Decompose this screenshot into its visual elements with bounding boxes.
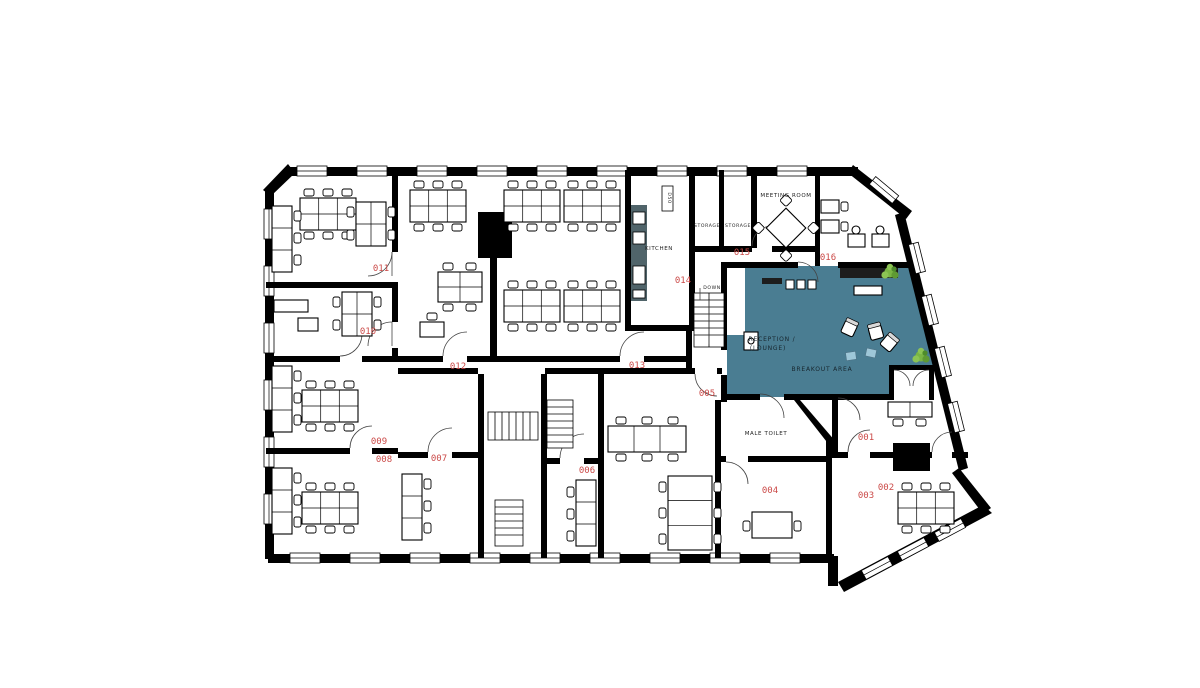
desk-cluster xyxy=(888,402,932,426)
desk xyxy=(821,200,839,213)
desk-cluster xyxy=(302,381,358,431)
desk-strip xyxy=(567,480,596,546)
reception-lounge-area xyxy=(727,266,941,397)
coffee-table xyxy=(854,286,882,295)
desk xyxy=(821,220,839,233)
equipment-table xyxy=(848,226,889,247)
credenza xyxy=(274,300,308,312)
desk-strip xyxy=(402,474,431,540)
stair-flight xyxy=(547,400,573,448)
reception-floor xyxy=(727,266,941,397)
room-number-009: 009 xyxy=(371,437,387,447)
small-table xyxy=(743,512,801,538)
desk-cluster xyxy=(504,281,560,331)
kitchen-label: KITCHEN xyxy=(645,246,673,252)
desk-strip xyxy=(272,366,301,432)
desk-strip xyxy=(272,206,301,272)
meeting-room-label: MEETING ROOM xyxy=(760,193,811,199)
room-number-004: 004 xyxy=(762,486,778,496)
door-tag: D50 xyxy=(662,186,673,211)
room-number-011: 011 xyxy=(373,264,389,274)
desk-cluster xyxy=(438,263,482,311)
storage-label: STORAGE xyxy=(725,223,751,229)
structural-column xyxy=(893,443,930,471)
room-number-001: 001 xyxy=(858,433,874,443)
breakout-label: BREAKOUT AREA xyxy=(791,366,852,373)
room-number-007: 007 xyxy=(431,454,447,464)
room-number-010: 010 xyxy=(360,327,376,337)
room-number-014: 014 xyxy=(675,276,691,286)
kitchen-counter xyxy=(631,205,647,301)
room-number-006: 006 xyxy=(579,466,595,476)
desk-cluster xyxy=(564,181,620,231)
long-table xyxy=(608,417,686,461)
room-number-012: 012 xyxy=(450,362,466,372)
room-number-016: 016 xyxy=(820,253,836,263)
stair-flight xyxy=(495,500,523,546)
stair-flight xyxy=(694,293,724,347)
floor-plan: D50 KITCHEN STORAGE STORAGE MEETING ROOM… xyxy=(0,0,1200,688)
reception-label: (LOUNGE) xyxy=(750,345,786,352)
stairs-down-label: DOWN xyxy=(703,285,721,291)
room-number-008: 008 xyxy=(376,455,392,465)
desk-cluster xyxy=(564,281,620,331)
male-toilet-label: MALE TOILET xyxy=(745,431,788,437)
svg-text:D50: D50 xyxy=(666,192,672,203)
desk-cluster xyxy=(302,483,358,533)
storage-label: STORAGE xyxy=(694,223,720,229)
reception-label: RECEPTION / xyxy=(749,336,796,343)
stair-flight xyxy=(488,412,538,440)
room-number-013: 013 xyxy=(629,361,645,371)
room-number-015: 015 xyxy=(734,248,750,258)
long-table xyxy=(659,476,721,550)
room-number-003: 003 xyxy=(858,491,874,501)
desk xyxy=(420,313,444,337)
room-number-005: 005 xyxy=(699,389,715,399)
desk-strip xyxy=(272,468,301,534)
desk xyxy=(298,318,318,331)
desk-cluster xyxy=(410,181,466,231)
desk-cluster xyxy=(504,181,560,231)
room-number-002: 002 xyxy=(878,483,894,493)
